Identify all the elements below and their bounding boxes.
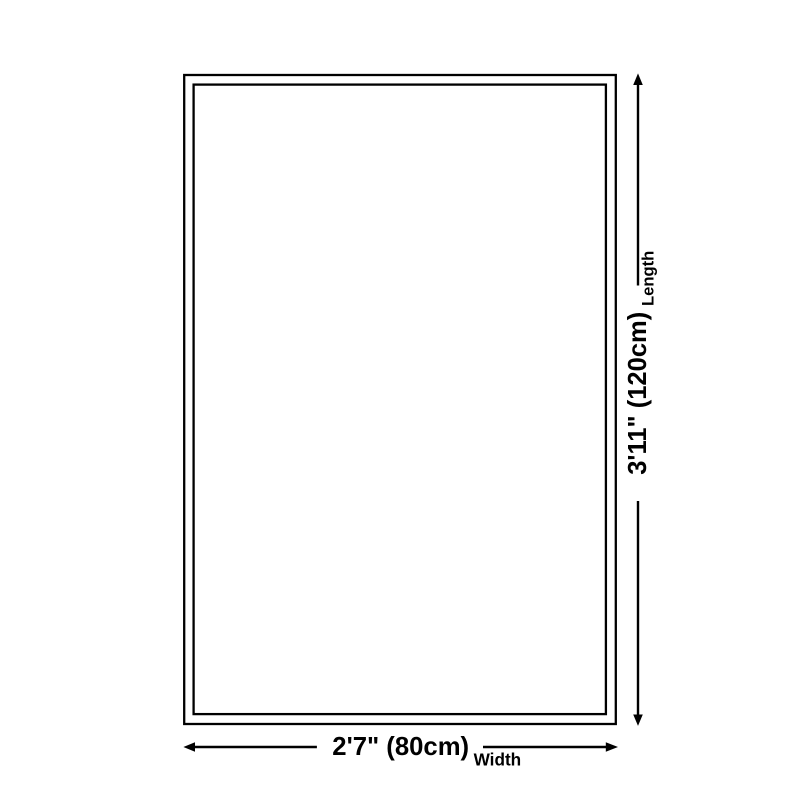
svg-text:3'11" (120cm): 3'11" (120cm)	[624, 312, 652, 475]
svg-text:Length: Length	[639, 251, 658, 306]
svg-text:2'7" (80cm): 2'7" (80cm)	[332, 733, 469, 761]
svg-text:Width: Width	[474, 750, 522, 770]
